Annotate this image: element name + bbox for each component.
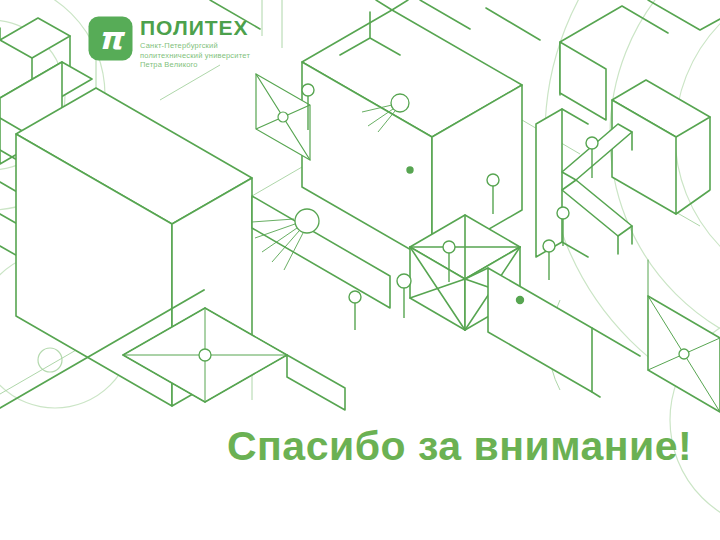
logo-subtitle-line-2: политехнический университет: [140, 51, 250, 61]
thank-you-text: Спасибо за внимание!: [227, 423, 692, 470]
logo-subtitle-line-1: Санкт-Петербургский: [140, 41, 250, 51]
university-logo: π ПОЛИТЕХ Санкт-Петербургский политехнич…: [88, 16, 250, 70]
logo-subtitle: Санкт-Петербургский политехнический унив…: [140, 41, 250, 70]
pi-glyph: π: [98, 20, 125, 56]
slide: π ПОЛИТЕХ Санкт-Петербургский политехнич…: [0, 0, 720, 540]
logo-text: ПОЛИТЕХ Санкт-Петербургский политехничес…: [140, 16, 250, 70]
logo-title: ПОЛИТЕХ: [140, 17, 250, 39]
logo-subtitle-line-3: Петра Великого: [140, 60, 250, 70]
pi-logo-icon: π: [88, 16, 133, 61]
